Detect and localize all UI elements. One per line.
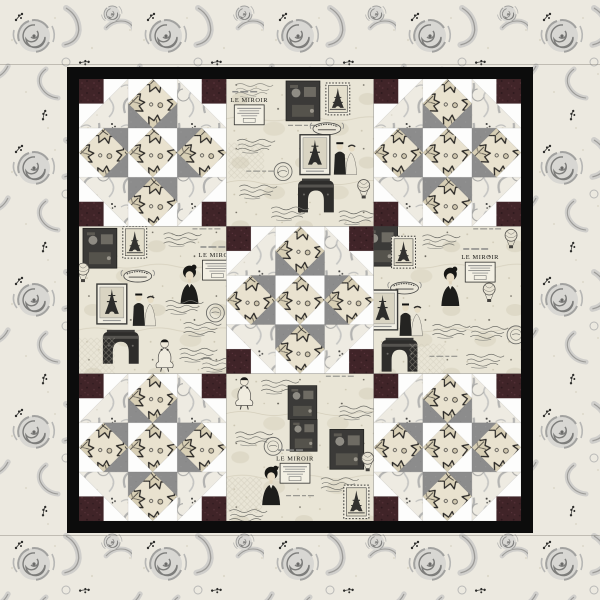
paris-block-left	[77, 226, 239, 373]
paris-block-right	[364, 226, 525, 379]
pieced-block-r2c0	[79, 374, 226, 521]
pieced-block-r0c2	[374, 79, 521, 226]
quilt-photo: LE MIROIR	[0, 0, 600, 600]
paris-block-top	[226, 79, 376, 226]
pieced-block-r2c2	[374, 374, 521, 521]
paris-block-bottom	[226, 374, 376, 524]
pieced-block-r0c0	[79, 79, 226, 226]
pieced-block-r1c1	[226, 226, 373, 373]
quilt-svg: LE MIROIR	[0, 0, 600, 600]
